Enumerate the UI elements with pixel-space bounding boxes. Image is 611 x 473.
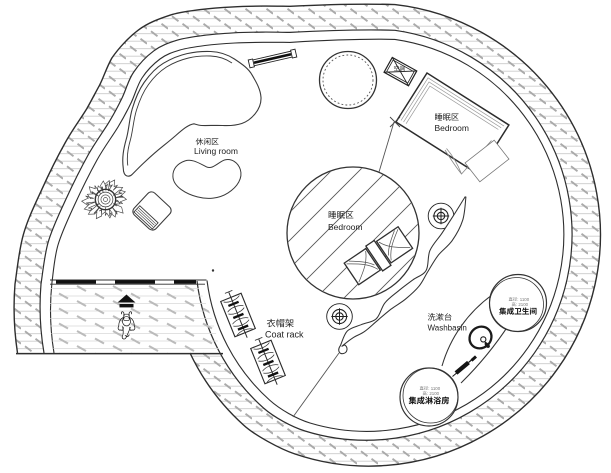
svg-text:Bedroom: Bedroom	[328, 222, 363, 232]
svg-text:Coat rack: Coat rack	[265, 330, 304, 340]
svg-text:: 2100: : 2100	[427, 391, 440, 396]
svg-text:Washbasin: Washbasin	[428, 324, 467, 333]
svg-text:: 2100: : 2100	[516, 302, 529, 307]
svg-text:Living room: Living room	[194, 146, 238, 156]
svg-text:Bedroom: Bedroom	[435, 123, 470, 133]
